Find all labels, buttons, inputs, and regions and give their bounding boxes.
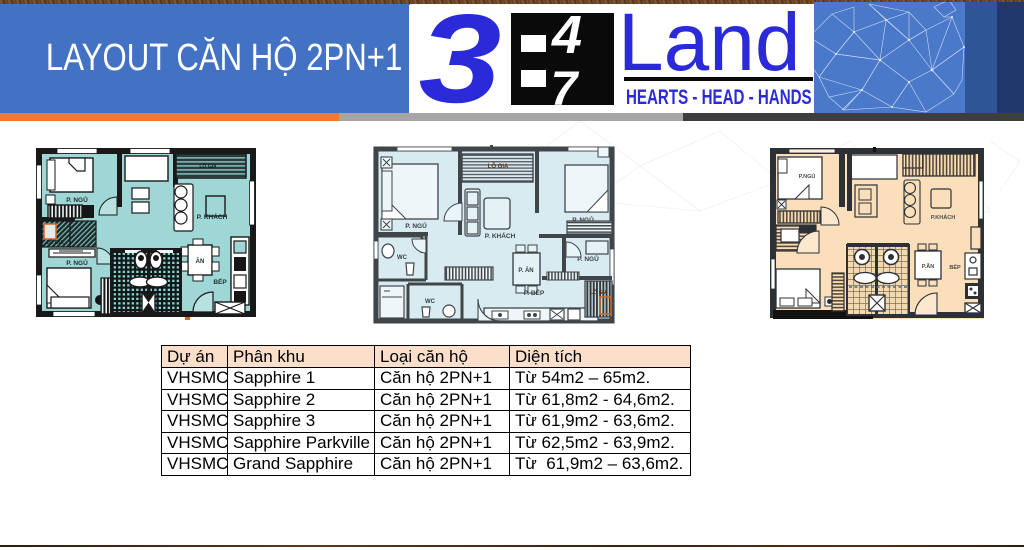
svg-text:LÔ GIA: LÔ GIA [488,162,509,170]
svg-text:WC: WC [397,255,408,261]
svg-text:LÔ GIA: LÔ GIA [199,162,217,170]
svg-text:7: 7 [551,63,580,105]
svg-text:P.NGỦ: P.NGỦ [799,173,816,180]
svg-text:P. ĂN: P. ĂN [518,267,533,274]
svg-text:WC: WC [425,299,436,305]
svg-text:P.ĂN: P.ĂN [922,263,934,270]
svg-text:ĂN: ĂN [196,258,205,265]
svg-text:P. KHÁCH: P. KHÁCH [197,212,228,221]
svg-text:LÔ GIA: LÔ GIA [590,288,608,296]
svg-text:P. NGỦ: P. NGỦ [66,258,88,267]
svg-text:LÔ GIA: LÔ GIA [46,238,64,246]
svg-text:4: 4 [551,13,582,65]
svg-text:P. NGỦ: P. NGỦ [405,221,427,230]
svg-text:P.KHÁCH: P.KHÁCH [931,214,955,221]
svg-text:BẾP: BẾP [949,264,961,271]
svg-text:P. KHÁCH: P. KHÁCH [485,231,516,240]
svg-text:P. NGỦ: P. NGỦ [66,195,88,204]
